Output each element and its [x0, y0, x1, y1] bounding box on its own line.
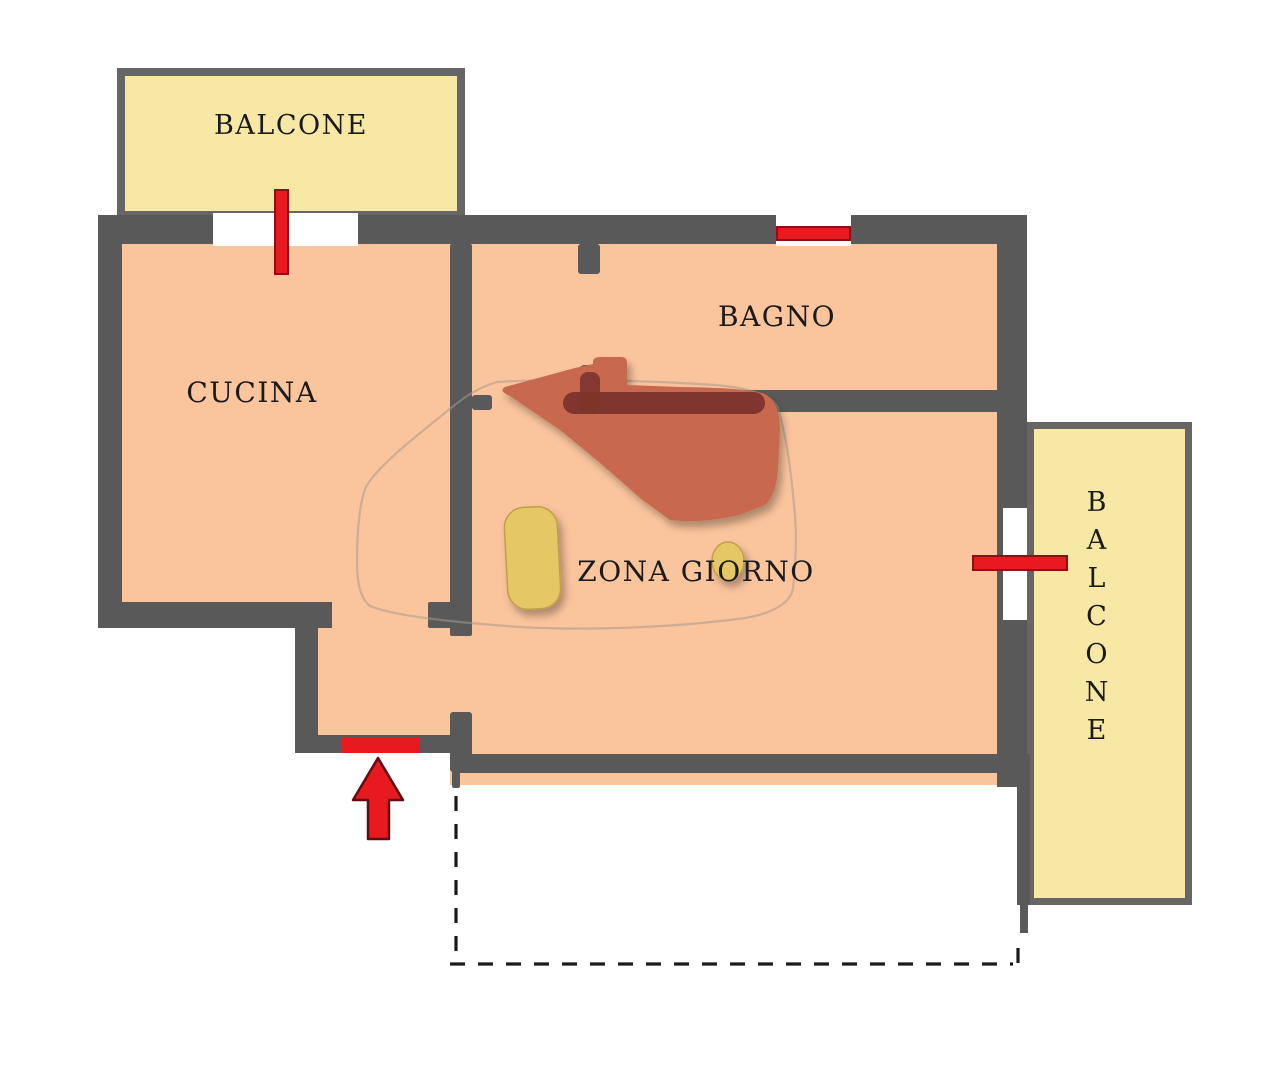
wall-kitchen-bottom: [98, 602, 332, 628]
wall-stub-junction-left: [428, 602, 452, 628]
wall-bath-left-upper-stub: [578, 244, 600, 274]
wall-spike-below-junction: [452, 770, 460, 788]
wall-stub-bath-line: [472, 395, 492, 410]
wall-step-vertical: [295, 628, 318, 753]
property-boundary-dashed-line: [450, 796, 1018, 964]
floor-plan: BALCONE CUCINA BAGNO ZONA GIORNO BALCONE: [0, 0, 1280, 1065]
logo-watermark-dark-stub: [580, 372, 600, 414]
balcony-top-label: BALCONE: [117, 110, 465, 142]
bathroom-window-marker-icon: [777, 227, 850, 240]
living-balcony-door-marker-icon: [973, 556, 1067, 570]
room-label-cucina: CUCINA: [102, 377, 402, 409]
room-label-zona-giorno: ZONA GIORNO: [520, 556, 872, 588]
wall-balcony-right-strip: [1017, 785, 1030, 905]
wall-right: [997, 215, 1027, 785]
wall-living-bottom: [452, 754, 1030, 773]
wall-left: [98, 215, 122, 628]
room-label-bagno: BAGNO: [627, 301, 927, 333]
kitchen-balcony-door-marker-icon: [275, 190, 288, 274]
wall-kitchen-living-divider: [450, 244, 472, 636]
wall-stub-junction-lower: [450, 712, 472, 772]
entrance-door-sill: [342, 737, 420, 753]
balcony-right-label: BALCONE: [1078, 484, 1115, 750]
balcony-top-area: [121, 72, 461, 215]
entrance-arrow-icon: [353, 758, 403, 839]
wall-stub-below-balcony: [1020, 905, 1028, 933]
